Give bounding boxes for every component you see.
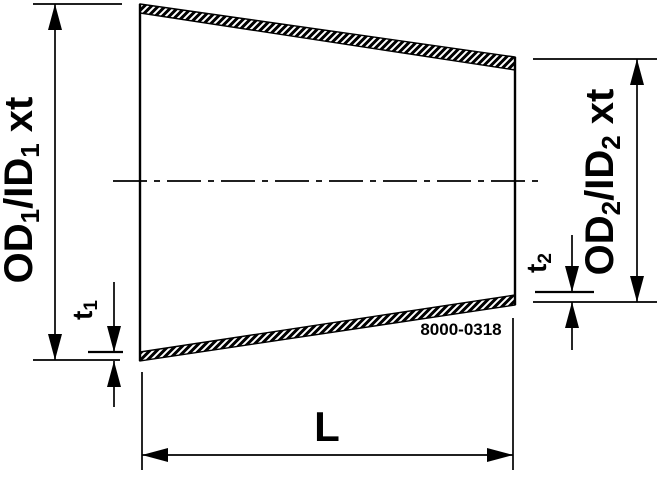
od1-label-part: xt	[0, 97, 41, 133]
od2-label-subscript: 2	[596, 135, 626, 149]
od2-label-part: xt	[578, 89, 622, 125]
od2-label-part: OD	[578, 215, 622, 275]
figure-number: 8000-0318	[420, 320, 501, 339]
technical-drawing: OD1/ID1xt t1 OD2/ID2xt t2 L 8000-0318	[0, 0, 659, 477]
t1-label-subscript: 1	[81, 300, 102, 311]
t2-label-subscript: 2	[535, 253, 556, 264]
od2-label-part: /ID	[578, 150, 622, 201]
od1-label-subscript: 1	[15, 143, 45, 157]
od1-label-subscript: 1	[15, 209, 45, 223]
od1-label: OD1/ID1xt	[0, 97, 45, 284]
od1-label-part: OD	[0, 223, 41, 283]
t2-label: t2	[521, 253, 556, 273]
od1-label-part: /ID	[0, 158, 41, 209]
length-label: L	[314, 403, 340, 450]
reducer-top-wall	[140, 4, 515, 70]
od2-label: OD2/ID2xt	[578, 89, 626, 276]
t1-label-part: t	[67, 311, 98, 320]
t2-label-part: t	[521, 264, 552, 273]
t1-label: t1	[67, 300, 102, 320]
od2-label-subscript: 2	[596, 201, 626, 215]
reducer-drawing-canvas: OD1/ID1xt t1 OD2/ID2xt t2 L 8000-0318	[0, 0, 659, 477]
